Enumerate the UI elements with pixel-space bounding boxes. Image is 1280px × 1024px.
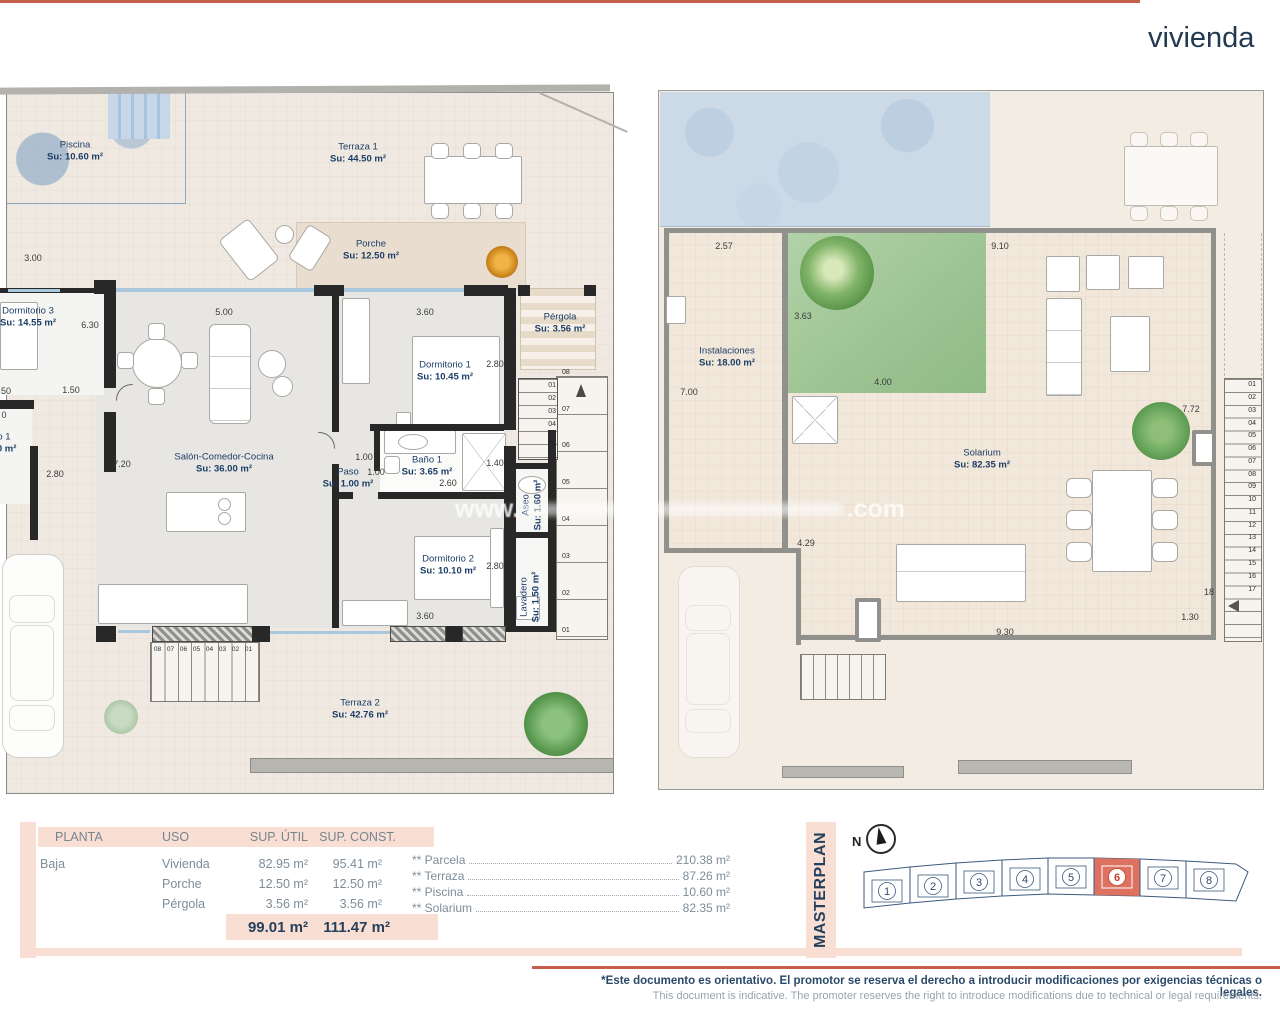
summary-row: ** Piscina10.60 m² bbox=[412, 883, 730, 899]
plot-number: 7 bbox=[1160, 873, 1166, 885]
table-planta-value: Baja bbox=[40, 857, 65, 871]
watermark-blur bbox=[523, 503, 842, 516]
dimension-label: 4.00 bbox=[874, 377, 892, 387]
room-label-instalaciones: InstalacionesSu: 18.00 m² bbox=[699, 346, 755, 371]
chair bbox=[181, 352, 198, 369]
room-label-dormitorio1: Dormitorio 1Su: 10.45 m² bbox=[417, 360, 473, 385]
dimension-label: 2.80 bbox=[486, 561, 504, 571]
summary-value: 210.38 m² bbox=[676, 853, 730, 867]
pouf bbox=[272, 376, 293, 397]
chair bbox=[463, 143, 481, 159]
curb bbox=[958, 760, 1132, 774]
chair bbox=[1066, 510, 1092, 530]
wall bbox=[30, 446, 38, 540]
wall bbox=[504, 463, 556, 469]
dimension-label: 18 bbox=[1204, 587, 1214, 597]
curb bbox=[782, 766, 904, 778]
dimension-label: 7.00 bbox=[680, 387, 698, 397]
room-label-dormitorio3: Dormitorio 3Su: 14.55 m² bbox=[0, 306, 56, 331]
stair-number: 06 bbox=[562, 442, 570, 449]
wall bbox=[370, 424, 504, 431]
exterior-staircase bbox=[800, 654, 886, 700]
room-label-piscina: PiscinaSu: 10.60 m² bbox=[47, 140, 103, 165]
room-label-bano1: Baño 1Su: 3.65 m² bbox=[402, 455, 453, 480]
masterplan-title: MASTERPLAN bbox=[812, 832, 830, 948]
tree bbox=[524, 692, 588, 756]
table-cell-util: 82.95 m² bbox=[230, 857, 308, 871]
dimension-label: 0 bbox=[1, 410, 6, 420]
dimension-label: 6.30 bbox=[81, 320, 99, 330]
closet bbox=[342, 600, 408, 626]
stair-number: 15 bbox=[1230, 560, 1256, 567]
side-table bbox=[1046, 256, 1080, 292]
shelf bbox=[666, 296, 686, 324]
wall bbox=[504, 626, 556, 632]
side-table bbox=[1086, 255, 1120, 290]
room-label-lavadero: LavaderoSu: 1.50 m² bbox=[519, 572, 544, 623]
chair bbox=[117, 352, 134, 369]
stair-number: 02 bbox=[1230, 394, 1256, 401]
window bbox=[118, 630, 150, 633]
dimension-label: 5.00 bbox=[215, 307, 233, 317]
dimension-label: 3.00 bbox=[24, 253, 42, 263]
stair-number: 12 bbox=[1230, 522, 1256, 529]
wall-hatched bbox=[462, 626, 506, 642]
dining-table-below bbox=[1124, 146, 1218, 206]
room-label-porche: PorcheSu: 12.50 m² bbox=[343, 239, 399, 264]
stair-number: 11 bbox=[1230, 509, 1256, 516]
plan-sheet: vivienda PiscinaSu: 10.60 m² Terraza 1Su… bbox=[0, 0, 1280, 1024]
wall bbox=[504, 288, 516, 430]
header-rule bbox=[0, 0, 1140, 3]
masterplan-map: 1 2 3 4 5 6 7 8 bbox=[848, 842, 1258, 932]
stair-number: 07 bbox=[1230, 458, 1256, 465]
stair-number: 03 bbox=[216, 646, 229, 653]
chair bbox=[148, 323, 165, 340]
dimension-label: 1.00 bbox=[355, 452, 373, 462]
stair-number: 06 bbox=[1230, 445, 1256, 452]
stair-number: 04 bbox=[540, 421, 556, 428]
room-label-terraza1: Terraza 1Su: 44.50 m² bbox=[330, 142, 386, 167]
chair bbox=[1066, 542, 1092, 562]
dimension-label: 1.30 bbox=[1181, 612, 1199, 622]
sofa bbox=[209, 324, 251, 424]
stair-number: 08 bbox=[562, 369, 570, 376]
lounger bbox=[1110, 316, 1150, 372]
stair-number: 05 bbox=[1230, 432, 1256, 439]
wall bbox=[96, 626, 116, 642]
room-label-paso: PasoSu: 1.00 m² bbox=[323, 467, 374, 492]
masterplan-strip: MASTERPLAN bbox=[806, 822, 836, 958]
stair-number: 07 bbox=[164, 646, 177, 653]
window bbox=[8, 289, 60, 292]
chair bbox=[1160, 206, 1178, 221]
stair-number: 06 bbox=[177, 646, 190, 653]
stair-number: 07 bbox=[562, 406, 570, 413]
wall-hatched bbox=[390, 626, 446, 642]
plot-number: 1 bbox=[884, 886, 890, 898]
stair-number: 05 bbox=[540, 434, 556, 441]
wall bbox=[504, 446, 516, 632]
pool-below bbox=[660, 92, 990, 227]
stair-number: 02 bbox=[229, 646, 242, 653]
chair bbox=[1152, 478, 1178, 498]
wall bbox=[332, 292, 339, 432]
table-cell-uso: Porche bbox=[162, 877, 202, 891]
summary-label: ** Terraza bbox=[412, 869, 464, 883]
chair bbox=[431, 143, 449, 159]
stair-number: 09 bbox=[1230, 483, 1256, 490]
col-header-planta: PLANTA bbox=[55, 830, 103, 844]
summary-label: ** Solarium bbox=[412, 901, 472, 915]
side-table bbox=[275, 225, 294, 244]
side-table bbox=[1128, 256, 1164, 289]
window bbox=[344, 288, 464, 292]
room-label-dormitorio2: Dormitorio 2Su: 10.10 m² bbox=[420, 554, 476, 579]
chair bbox=[148, 388, 165, 405]
chair bbox=[1190, 132, 1208, 147]
pergola-post bbox=[584, 285, 596, 296]
dimension-label: 7.72 bbox=[1182, 404, 1200, 414]
plot-number: 3 bbox=[976, 877, 982, 889]
room-label-solarium: SolariumSu: 82.35 m² bbox=[954, 448, 1010, 473]
plot-number: 4 bbox=[1022, 874, 1028, 886]
col-header-uso: USO bbox=[162, 830, 189, 844]
summary-list: ** Parcela210.38 m² ** Terraza87.26 m² *… bbox=[412, 851, 730, 915]
summary-row: ** Solarium82.35 m² bbox=[412, 899, 730, 915]
sink bbox=[218, 512, 231, 525]
curb bbox=[250, 758, 614, 773]
wall bbox=[104, 294, 116, 388]
wall-hatched bbox=[152, 626, 258, 642]
col-header-const: SUP. CONST. bbox=[312, 830, 396, 844]
stair-number: 04 bbox=[203, 646, 216, 653]
chair bbox=[431, 203, 449, 219]
washbasin bbox=[398, 434, 428, 450]
stair-number: 05 bbox=[190, 646, 203, 653]
table-cell-util: 3.56 m² bbox=[230, 897, 308, 911]
stair-number: 16 bbox=[1230, 573, 1256, 580]
room-label-pergola: PérgolaSu: 3.56 m² bbox=[535, 312, 586, 337]
stair-number: 13 bbox=[1230, 534, 1256, 541]
sink bbox=[218, 498, 231, 511]
kitchen-counter bbox=[98, 584, 248, 624]
room-label-salon: Salón-Comedor-CocinaSu: 36.00 m² bbox=[174, 452, 273, 477]
stair-number: 01 bbox=[1230, 381, 1256, 388]
stair-number: 03 bbox=[1230, 407, 1256, 414]
sliding-door bbox=[270, 631, 390, 634]
dimension-label: 2.80 bbox=[486, 359, 504, 369]
stair-number: 06 bbox=[540, 447, 556, 454]
roof-hatch bbox=[792, 396, 838, 444]
wall bbox=[314, 285, 344, 296]
summary-label: ** Piscina bbox=[412, 885, 463, 899]
stair-number: 14 bbox=[1230, 547, 1256, 554]
summary-row: ** Terraza87.26 m² bbox=[412, 867, 730, 883]
wardrobe bbox=[342, 298, 370, 384]
watermark: www. .com bbox=[455, 495, 905, 524]
wall bbox=[548, 430, 556, 632]
watermark-prefix: www. bbox=[455, 495, 519, 524]
dimension-label: 3.60 bbox=[416, 307, 434, 317]
table-cell-const: 95.41 m² bbox=[306, 857, 382, 871]
stair-number: 05 bbox=[562, 479, 570, 486]
chair bbox=[1152, 542, 1178, 562]
dimension-label: 4.29 bbox=[797, 538, 815, 548]
total-util: 99.01 m² bbox=[230, 919, 308, 936]
car bbox=[2, 554, 64, 758]
stair-number: 08 bbox=[1230, 471, 1256, 478]
table-cell-util: 12.50 m² bbox=[230, 877, 308, 891]
summary-value: 10.60 m² bbox=[683, 885, 730, 899]
toilet bbox=[384, 456, 400, 474]
dimension-label: 3.60 bbox=[416, 611, 434, 621]
round-table bbox=[132, 338, 182, 388]
kitchen-island bbox=[166, 492, 246, 532]
plot-number: 8 bbox=[1206, 875, 1212, 887]
stair-number: 03 bbox=[562, 553, 570, 560]
dimension-label: 1.00 bbox=[367, 467, 385, 477]
col-header-util: SUP. ÚTIL bbox=[230, 830, 308, 844]
stair-number: 08 bbox=[151, 646, 164, 653]
disclaimer-en: This document is indicative. The promote… bbox=[560, 990, 1262, 1002]
wall bbox=[374, 431, 380, 471]
summary-label: ** Parcela bbox=[412, 853, 465, 867]
wall bbox=[464, 285, 508, 296]
dimension-label: 2.60 bbox=[439, 478, 457, 488]
dining-table bbox=[424, 156, 522, 204]
chair bbox=[495, 143, 513, 159]
wall bbox=[339, 492, 353, 499]
wall bbox=[0, 400, 34, 409]
chair bbox=[463, 203, 481, 219]
chair bbox=[1130, 132, 1148, 147]
door-mark bbox=[1192, 430, 1216, 466]
chair bbox=[1152, 510, 1178, 530]
bottom-accent-band bbox=[20, 948, 1242, 956]
wall bbox=[504, 532, 556, 538]
left-accent-strip bbox=[20, 822, 36, 958]
dimension-label: 7.20 bbox=[113, 459, 131, 469]
dimension-label: 2.80 bbox=[46, 469, 64, 479]
dimension-label: 2.57 bbox=[715, 241, 733, 251]
table-cell-uso: Pérgola bbox=[162, 897, 205, 911]
summary-value: 82.35 m² bbox=[683, 901, 730, 915]
door-mark bbox=[855, 598, 881, 642]
stair-number: 01 bbox=[540, 382, 556, 389]
dining-table bbox=[1092, 470, 1152, 572]
room-label-partial: o 100 m² bbox=[0, 432, 16, 457]
table-cell-const: 3.56 m² bbox=[306, 897, 382, 911]
table-cell-const: 12.50 m² bbox=[306, 877, 382, 891]
dimension-label: 1.50 bbox=[62, 385, 80, 395]
chair bbox=[1130, 206, 1148, 221]
shrub bbox=[104, 700, 138, 734]
pouf bbox=[258, 350, 286, 378]
wall bbox=[446, 626, 462, 642]
orange-plant bbox=[486, 246, 518, 278]
stair-number: 01 bbox=[242, 646, 255, 653]
table-cell-uso: Vivienda bbox=[162, 857, 210, 871]
stair-number: 01 bbox=[562, 627, 570, 634]
wall bbox=[94, 280, 116, 294]
dimension-label: 9.30 bbox=[996, 627, 1014, 637]
stair-number: 10 bbox=[1230, 496, 1256, 503]
footer-rule bbox=[532, 966, 1280, 969]
watermark-suffix: .com bbox=[847, 495, 905, 524]
chair bbox=[495, 203, 513, 219]
plot-number: 2 bbox=[930, 881, 936, 893]
page-title: vivienda bbox=[1148, 22, 1254, 55]
stair-number: 03 bbox=[540, 408, 556, 415]
garden-tree bbox=[800, 236, 874, 310]
summary-row: ** Parcela210.38 m² bbox=[412, 851, 730, 867]
chair bbox=[1190, 206, 1208, 221]
dimension-label: 3.63 bbox=[794, 311, 812, 321]
staircase-dashed bbox=[1224, 233, 1262, 376]
summary-value: 87.26 m² bbox=[683, 869, 730, 883]
planter bbox=[896, 544, 1026, 602]
plot-number-highlighted: 6 bbox=[1114, 872, 1120, 884]
car bbox=[678, 566, 740, 758]
chair bbox=[1160, 132, 1178, 147]
window bbox=[116, 288, 314, 292]
pergola-post bbox=[518, 285, 530, 296]
chair bbox=[1066, 478, 1092, 498]
dimension-label: 50 bbox=[1, 386, 11, 396]
room-label-terraza2: Terraza 2Su: 42.76 m² bbox=[332, 698, 388, 723]
plot-number: 5 bbox=[1068, 872, 1074, 884]
stair-number: 02 bbox=[540, 395, 556, 402]
stair-number: 17 bbox=[1230, 586, 1256, 593]
wall bbox=[252, 626, 270, 642]
dimension-label: 1.40 bbox=[486, 458, 504, 468]
stair-number: 02 bbox=[562, 590, 570, 597]
total-const: 111.47 m² bbox=[302, 919, 390, 936]
stair-arrow bbox=[1228, 600, 1239, 612]
dimension-label: 9.10 bbox=[991, 241, 1009, 251]
pool-steps bbox=[108, 93, 170, 139]
stair-number: 04 bbox=[1230, 420, 1256, 427]
sofa bbox=[1046, 298, 1082, 396]
stair-arrow-up bbox=[576, 384, 586, 397]
